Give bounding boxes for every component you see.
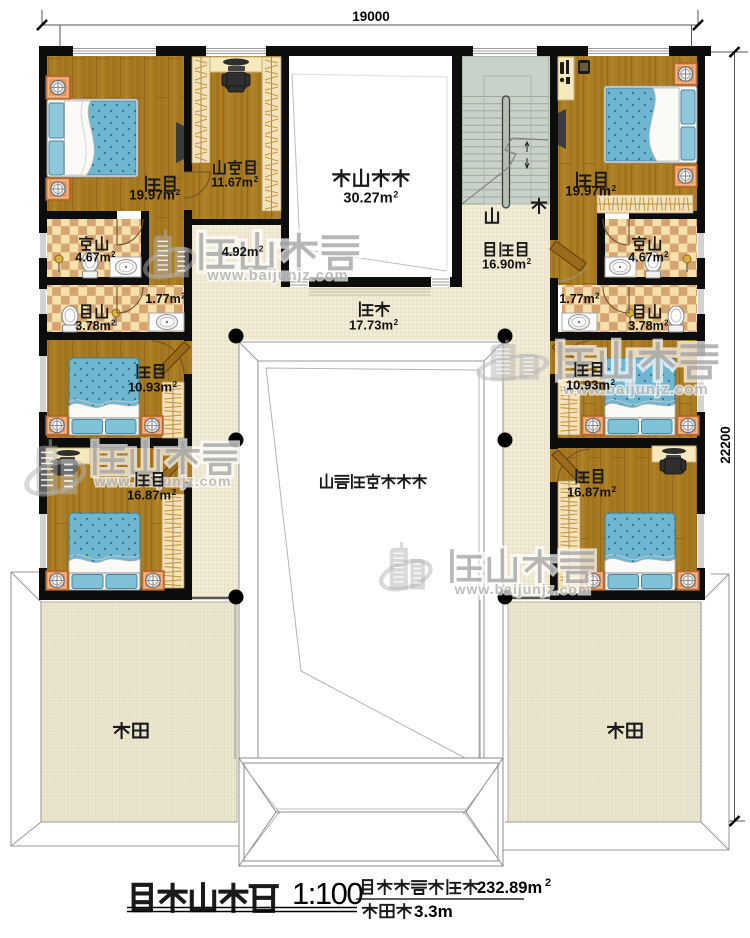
svg-text:2: 2 <box>254 175 259 184</box>
svg-text:2: 2 <box>111 319 116 328</box>
svg-text:2: 2 <box>612 485 617 494</box>
svg-text:22200: 22200 <box>718 426 733 464</box>
svg-text:4.67m: 4.67m <box>628 251 663 265</box>
svg-text:2: 2 <box>173 380 178 389</box>
svg-text:16.87m: 16.87m <box>127 488 171 503</box>
svg-text:4.92m: 4.92m <box>222 244 259 259</box>
svg-text:2: 2 <box>111 250 116 259</box>
svg-text:4.67m: 4.67m <box>75 251 110 265</box>
svg-text:2: 2 <box>181 292 186 301</box>
svg-text:2: 2 <box>545 877 551 889</box>
svg-text:2: 2 <box>664 319 669 328</box>
svg-text:16.90m: 16.90m <box>482 257 526 272</box>
svg-text:19000: 19000 <box>352 9 390 24</box>
svg-text:2: 2 <box>259 244 264 253</box>
svg-text:1:100: 1:100 <box>292 876 363 911</box>
svg-text:10.93m: 10.93m <box>128 380 172 395</box>
svg-text:3.78m: 3.78m <box>75 319 110 333</box>
svg-text:2: 2 <box>664 250 669 259</box>
svg-text:30.27m: 30.27m <box>343 191 392 207</box>
svg-text:16.87m: 16.87m <box>567 485 611 500</box>
svg-text:17.73m: 17.73m <box>349 318 393 333</box>
svg-text:1.77m: 1.77m <box>145 292 180 306</box>
svg-text:www.baijunjz.com: www.baijunjz.com <box>206 268 348 284</box>
svg-text:19.97m: 19.97m <box>129 188 175 203</box>
svg-text:2: 2 <box>595 292 600 301</box>
svg-text:2: 2 <box>611 378 616 387</box>
svg-text:232.89m: 232.89m <box>477 879 542 897</box>
svg-text:3.3m: 3.3m <box>414 902 453 921</box>
svg-text:www.baijunjz.com: www.baijunjz.com <box>454 581 592 597</box>
svg-text:19.97m: 19.97m <box>565 184 611 199</box>
svg-text:11.67m: 11.67m <box>211 176 253 190</box>
svg-text:2: 2 <box>393 189 398 199</box>
svg-text:3.78m: 3.78m <box>628 319 663 333</box>
svg-text:2: 2 <box>394 318 399 327</box>
svg-text:2: 2 <box>175 187 180 197</box>
svg-text:1.77m: 1.77m <box>559 292 594 306</box>
svg-text:10.93m: 10.93m <box>566 378 610 393</box>
svg-text:2: 2 <box>611 183 616 193</box>
svg-text:2: 2 <box>527 257 532 266</box>
svg-text:2: 2 <box>172 488 177 497</box>
